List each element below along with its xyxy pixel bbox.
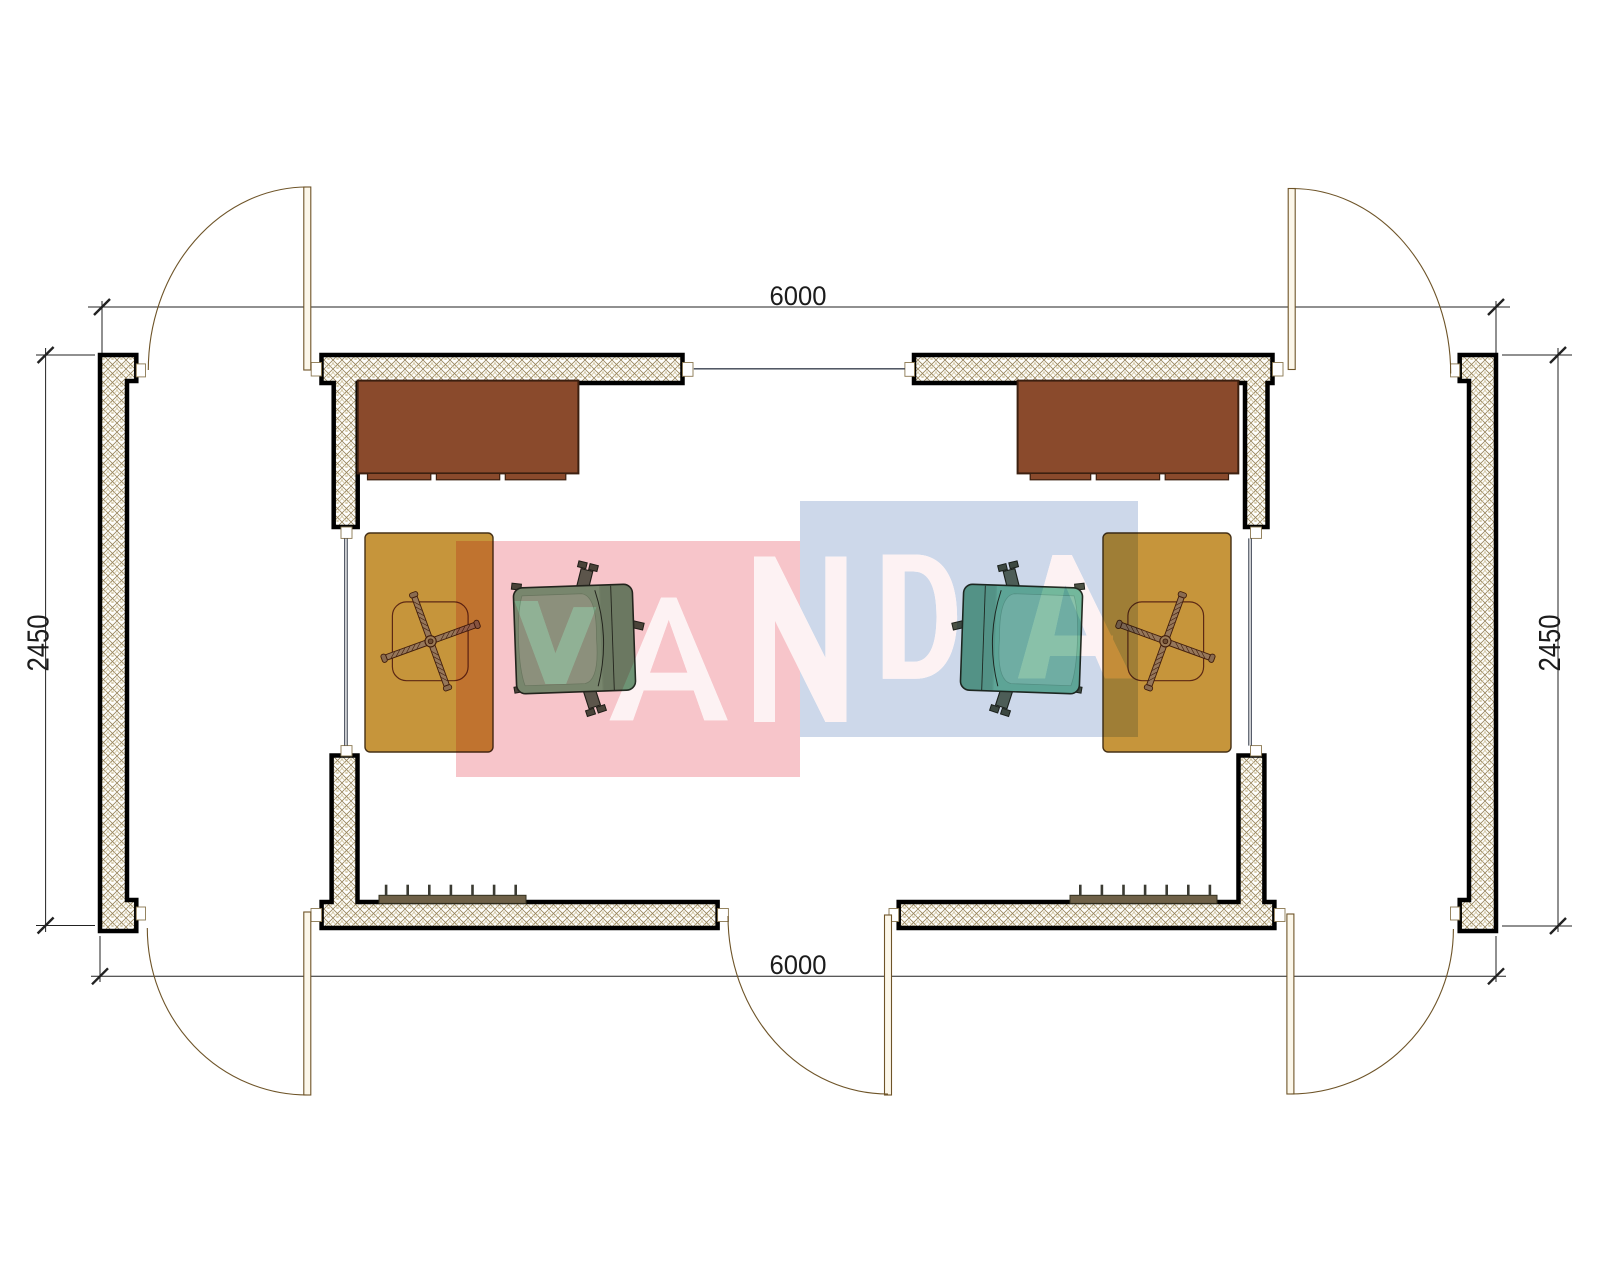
svg-text:2450: 2450 [20,615,55,672]
svg-text:6000: 6000 [770,950,827,980]
svg-text:2450: 2450 [1532,615,1567,672]
svg-text:6000: 6000 [770,281,827,311]
